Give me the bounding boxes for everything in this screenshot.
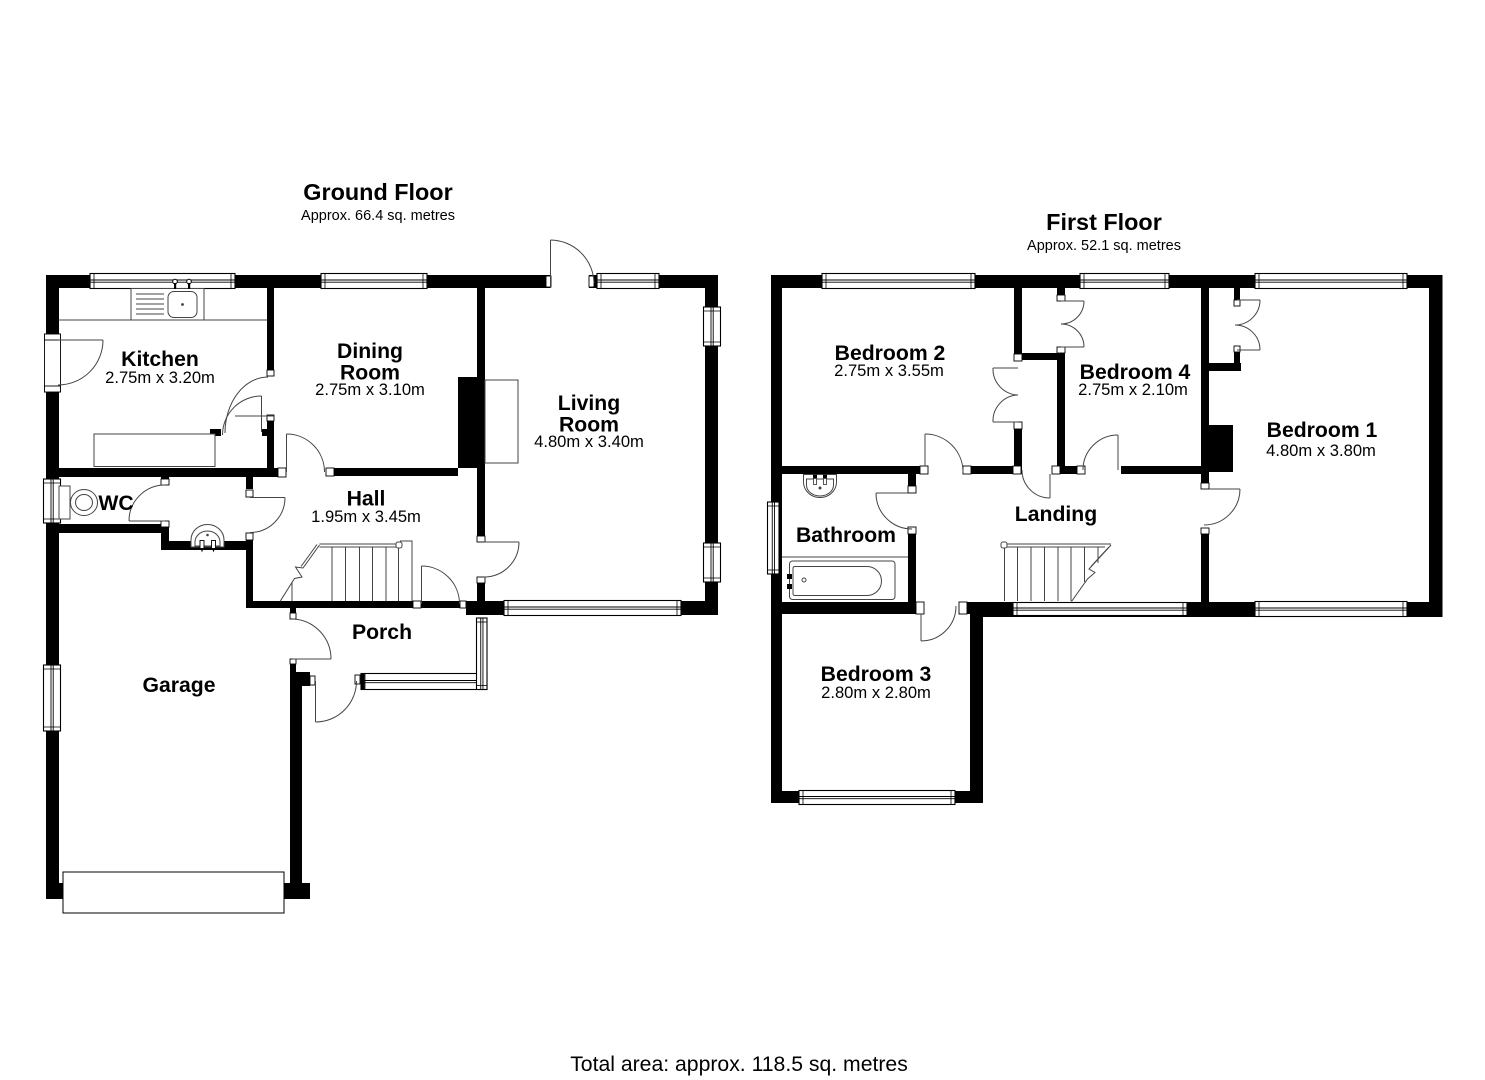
svg-text:2.75m x 3.55m: 2.75m x 3.55m [834,361,944,380]
svg-text:Total area: approx. 118.5 sq.: Total area: approx. 118.5 sq. metres [570,1053,908,1076]
svg-text:2.75m x 3.10m: 2.75m x 3.10m [315,380,425,399]
svg-text:2.75m x 3.20m: 2.75m x 3.20m [105,368,215,387]
svg-text:Bathroom: Bathroom [796,524,896,547]
svg-text:4.80m x 3.80m: 4.80m x 3.80m [1266,441,1376,460]
svg-text:Dining: Dining [337,340,403,363]
svg-text:2.80m x 2.80m: 2.80m x 2.80m [821,683,931,702]
svg-text:Porch: Porch [352,621,412,644]
svg-text:Approx. 52.1 sq. metres: Approx. 52.1 sq. metres [1027,238,1181,254]
svg-text:First Floor: First Floor [1046,209,1162,235]
svg-text:Ground Floor: Ground Floor [303,179,452,205]
svg-text:2.75m x 2.10m: 2.75m x 2.10m [1078,380,1188,399]
svg-text:WC: WC [98,492,133,515]
svg-text:4.80m x 3.40m: 4.80m x 3.40m [534,432,644,451]
svg-text:1.95m x 3.45m: 1.95m x 3.45m [311,507,421,526]
svg-text:Bedroom 1: Bedroom 1 [1267,419,1378,442]
svg-text:Living: Living [558,392,620,415]
svg-text:Landing: Landing [1015,503,1097,526]
svg-text:Approx. 66.4 sq. metres: Approx. 66.4 sq. metres [301,208,455,224]
svg-text:Garage: Garage [142,674,215,697]
